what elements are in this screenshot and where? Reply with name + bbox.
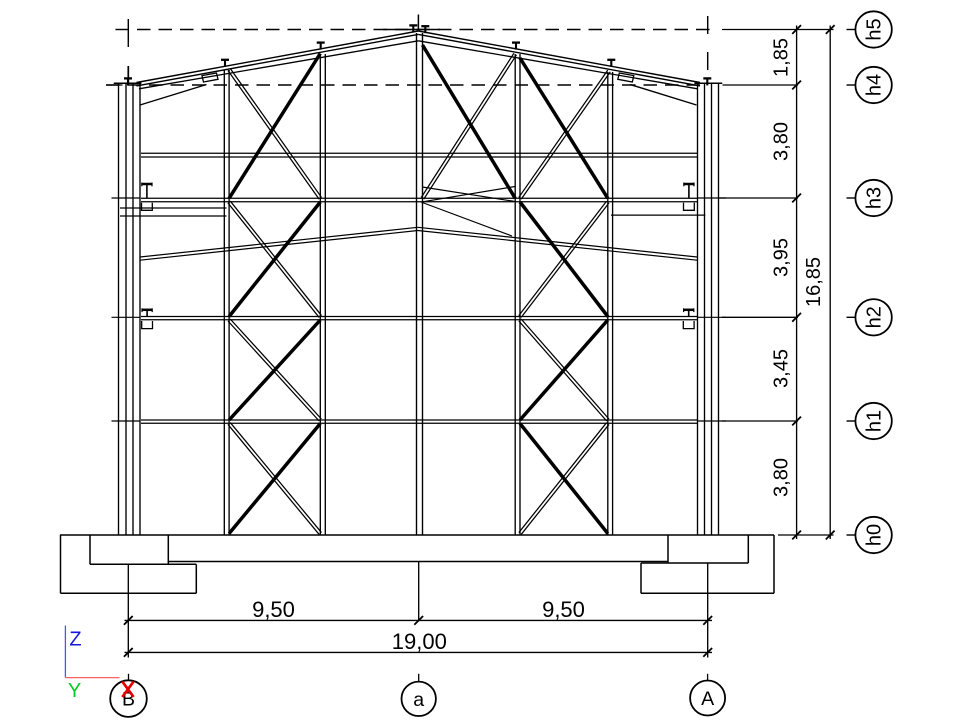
svg-text:h5: h5 (864, 18, 886, 40)
svg-text:16,85: 16,85 (803, 257, 825, 307)
svg-text:Z: Z (69, 629, 81, 651)
svg-text:3,45: 3,45 (771, 349, 793, 388)
svg-text:h3: h3 (864, 187, 886, 209)
svg-text:a: a (413, 689, 424, 711)
svg-text:1,85: 1,85 (771, 38, 793, 77)
svg-text:9,50: 9,50 (252, 597, 295, 622)
svg-text:9,50: 9,50 (542, 597, 585, 622)
svg-text:3,95: 3,95 (771, 238, 793, 277)
svg-text:h2: h2 (864, 306, 886, 328)
svg-text:3,80: 3,80 (771, 122, 793, 161)
svg-text:3,80: 3,80 (771, 458, 793, 497)
svg-text:19,00: 19,00 (392, 629, 447, 654)
svg-text:h0: h0 (864, 524, 886, 546)
svg-text:h4: h4 (864, 74, 886, 96)
svg-text:h1: h1 (864, 410, 886, 432)
svg-text:A: A (701, 688, 714, 710)
svg-text:Y: Y (68, 680, 81, 702)
